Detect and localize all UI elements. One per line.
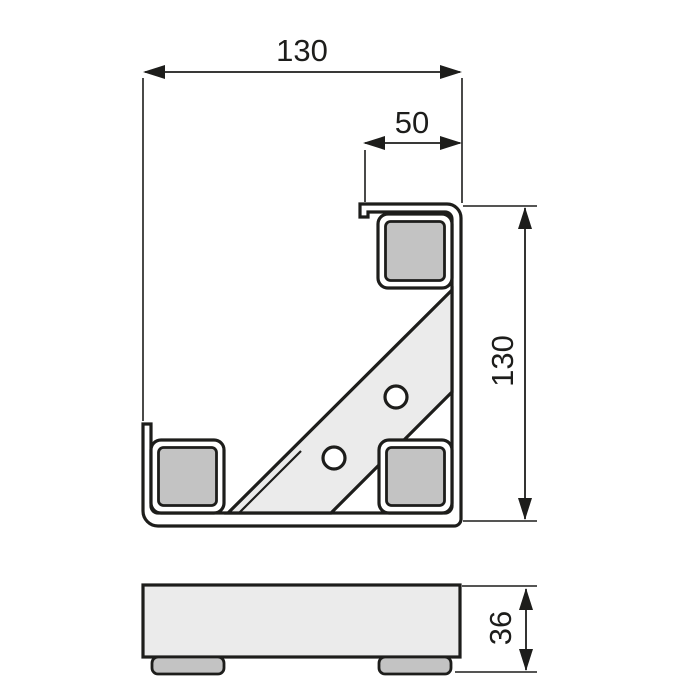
pad-inner <box>386 222 445 281</box>
dim-overall-height-label: 130 <box>485 335 520 387</box>
technical-drawing: 130 50 130 36 <box>0 0 700 700</box>
side-view <box>143 585 460 674</box>
side-foot-left <box>152 657 224 674</box>
drawing-lines <box>143 72 537 674</box>
pad-inner <box>387 448 445 506</box>
screw-hole-upper <box>385 386 407 408</box>
dim-overall-width-label: 130 <box>276 33 328 68</box>
arrow-left-icon <box>143 65 165 79</box>
rubber-pad-bottom-right <box>379 440 452 513</box>
front-view <box>143 204 461 526</box>
dim-profile-height-label: 36 <box>483 611 518 645</box>
rubber-pad-left <box>151 440 224 513</box>
dimension-lines <box>143 72 537 672</box>
arrow-right-icon <box>440 136 462 150</box>
drawing-svg: 130 50 130 36 <box>0 0 700 700</box>
pad-inner <box>159 448 217 506</box>
screw-hole-lower <box>323 447 345 469</box>
arrow-right-icon <box>440 65 462 79</box>
dimension-labels: 130 50 130 36 <box>276 33 520 645</box>
arrow-down-icon <box>518 498 532 520</box>
dimension-arrows <box>143 65 533 671</box>
arrow-left-icon <box>363 136 385 150</box>
arrow-up-icon <box>518 207 532 229</box>
arrow-down-icon <box>519 649 533 671</box>
side-foot-right <box>379 657 451 674</box>
side-body <box>143 585 460 657</box>
rubber-pad-top <box>378 214 452 288</box>
dim-flange-width-label: 50 <box>395 105 429 140</box>
arrow-up-icon <box>519 588 533 610</box>
